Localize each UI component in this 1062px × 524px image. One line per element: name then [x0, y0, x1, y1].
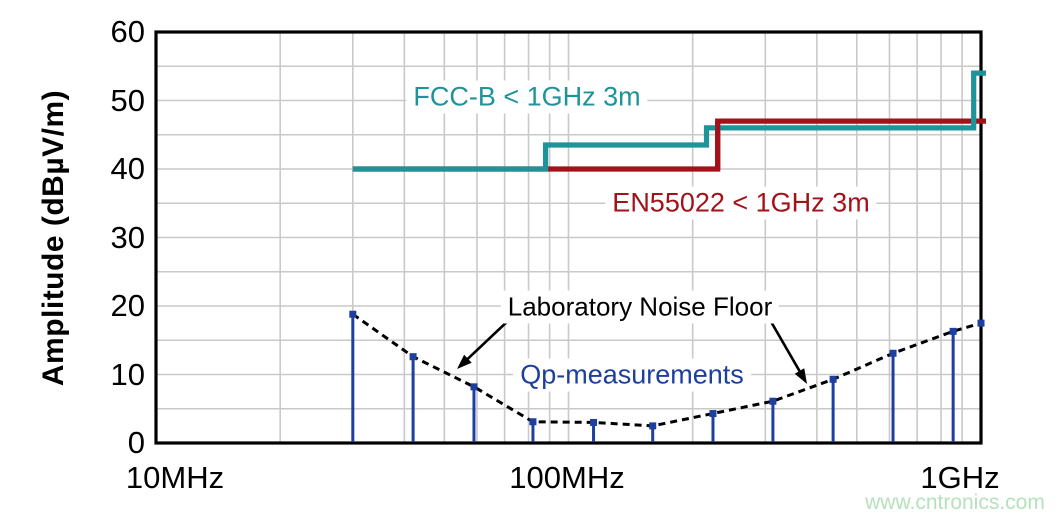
x-tick-1ghz: 1GHz — [920, 461, 999, 495]
noise-floor-label: Laboratory Noise Floor — [501, 291, 779, 324]
y-tick-30: 30 — [55, 220, 145, 256]
emc-limits-chart: Amplitude (dBµV/m) 60 50 40 30 20 10 0 1… — [0, 0, 1062, 524]
fcc-b-limit-label: FCC-B < 1GHz 3m — [406, 81, 647, 114]
y-tick-50: 50 — [55, 83, 145, 119]
y-tick-20: 20 — [55, 288, 145, 324]
y-tick-0: 0 — [55, 425, 145, 461]
chart-canvas — [0, 0, 1062, 524]
y-tick-10: 10 — [55, 357, 145, 393]
y-tick-60: 60 — [55, 14, 145, 50]
qp-measurements-label: Qp-measurements — [513, 359, 751, 392]
noise-floor-end-marker — [978, 320, 985, 327]
en55022-limit-label: EN55022 < 1GHz 3m — [605, 187, 876, 220]
x-tick-10mhz: 10MHz — [126, 461, 224, 495]
watermark-text: www.cntronics.com — [865, 491, 1045, 515]
y-tick-40: 40 — [55, 151, 145, 187]
x-tick-100mhz: 100MHz — [509, 461, 624, 495]
